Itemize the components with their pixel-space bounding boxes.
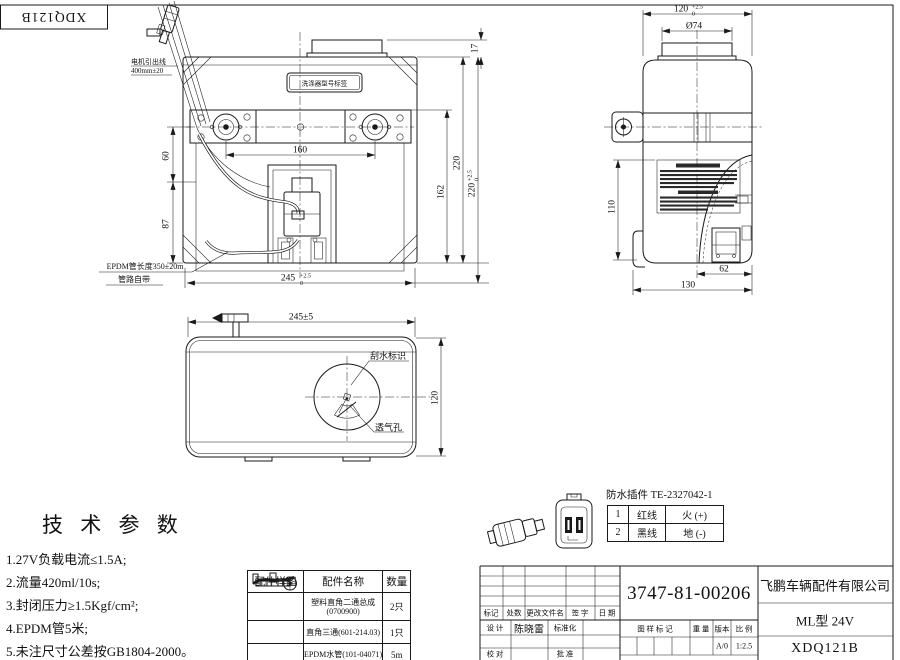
part-qty: 5m [383,644,411,660]
pump-channel [268,165,336,263]
model-label-plate: 洗涤器型号标签 [287,73,362,92]
epdm-hoses [199,134,304,253]
designer-name: 陈晓雷 [514,621,544,636]
rev-header-date: 日 期 [599,608,616,619]
front-view-dimensions: 60 87 160 162 220 220 +2.5 0 17 245 +2.5 [162,28,490,288]
dim-160: 160 [293,146,308,156]
drawing-linework: 洗涤器型号标签 [0,0,900,660]
dim-87: 87 [162,219,172,229]
warning-label [657,160,740,213]
rev-header-signature: 签 字 [572,608,589,619]
parts-header-name: 配件名称 [304,571,383,593]
dim-220-tol: 220 +2.5 0 [468,170,481,197]
side-view-dimensions: 120 +2.5 0 Ø74 110 62 130 [608,5,753,296]
part-name: 塑料直角二通总成 [304,598,382,607]
tech-param-item: 5.未注尺寸公差按GB1804-2000。 [6,641,194,660]
svg-text:+2.5: +2.5 [468,170,474,181]
tech-param-item: 3.封闭压力≥1.5Kgf/cm²; [6,595,138,614]
svg-text:+2.5: +2.5 [692,5,703,11]
tech-param-item: 2.流量420ml/10s; [6,572,100,591]
dim-245: 245 [281,274,296,284]
parts-table: 配件样图 配件名称 数量 塑料直角二通总成 (0700900) 2只 直角三通(… [247,570,411,660]
parts-row: 塑料直角二通总成 (0700900) 2只 [248,593,411,621]
connector-title: 防水插件 TE-2327042-1 [606,487,712,502]
product-model: ML型 24V [796,611,854,630]
pin-function: 地 (-) [666,524,724,542]
rev-header-docname: 更改文件名 [526,608,564,619]
part-name: EPDM水管(101-04071) [304,644,383,660]
part-number: 3747-81-00206 [627,583,751,605]
pin-wire: 黑线 [629,524,666,542]
wire-note-line2: 400mm±20 [131,67,164,75]
hose-note-line2: 管路自带 [118,274,150,284]
dim-110: 110 [608,200,618,214]
dim-17: 17 [471,44,481,54]
stamp-label: 图 样 标 记 [637,624,673,635]
weight-label: 重 量 [693,624,710,635]
wire-note-line1: 电机引出线 [131,57,166,66]
pin-wire: 红线 [629,506,666,524]
tank-side-outline [612,43,752,267]
dim-162: 162 [437,185,447,200]
pump-mount-plates [190,110,411,143]
dim-cap-diameter: Ø74 [686,22,703,32]
svg-text:0: 0 [300,281,303,287]
svg-text:0: 0 [475,178,481,181]
sheet-border [0,5,893,660]
part-qty: 2只 [383,593,411,621]
vent-hole [346,397,349,400]
scale-value: 1:2.5 [736,642,752,651]
pin-number: 1 [608,506,629,524]
motor-wire-note: 电机引出线 400mm±20 [131,57,178,75]
tech-param-item: 4.EPDM管5米; [6,618,88,637]
model-label-text: 洗涤器型号标签 [302,79,348,88]
check-label: 校 对 [487,649,504,660]
standardization-label: 标准化 [554,623,577,634]
dim-220: 220 [453,156,463,171]
outlet-nozzle [212,313,248,337]
parts-header-qty: 数量 [383,571,411,593]
top-view: 刮水标识 透气孔 245±5 120 [186,313,446,462]
approve-label: 批 准 [557,649,574,660]
design-label: 设 计 [487,623,504,634]
connector-3d-view [486,514,546,549]
pin-row: 1 红线 火 (+) [608,506,724,524]
svg-text:0: 0 [692,12,695,18]
rev-header-count: 处数 [507,608,522,619]
hose-length-note: EPDM管长度350±20m 管路自带 [99,252,228,285]
version-label: 版本 [715,624,730,635]
part-code: (0700900) [304,607,382,616]
pin-function: 火 (+) [666,506,724,524]
version-value: A/0 [716,642,728,651]
part-qty: 1只 [383,621,411,644]
connector-front-view [556,494,592,548]
engineering-drawing-sheet: 洗涤器型号标签 [0,0,900,660]
tech-params-title: 技 术 参 数 [42,509,184,539]
tech-param-item: 1.27V负载电流≤1.5A; [6,549,127,568]
epdm-hose-icon [248,571,301,587]
filler-cap-front [307,40,387,57]
dim-60: 60 [162,151,172,161]
dim-120-side: 120 [674,5,689,15]
side-view: 120 +2.5 0 Ø74 110 62 130 [604,5,762,296]
drawing-number: XDQ121B [791,641,859,657]
pin-row: 2 黑线 地 (-) [608,524,724,542]
corner-drawing-code: XDQ121B [0,5,107,29]
parts-row: 直角三通(601-214.03) 1只 [248,621,411,644]
dim-120-top: 120 [431,391,441,406]
rev-header-mark: 标记 [484,608,499,619]
svg-text:+2.5: +2.5 [300,274,311,280]
dim-62: 62 [719,265,729,275]
scale-label: 比 例 [736,624,753,635]
svg-text:220: 220 [468,183,478,198]
pin-table: 1 红线 火 (+) 2 黑线 地 (-) [607,505,724,542]
parts-row: EPDM水管(101-04071) 5m [248,644,411,660]
hose-note-line1: EPDM管长度350±20m [107,261,185,271]
wiper-mark-label: 刮水标识 [370,350,406,361]
front-view: 洗涤器型号标签 [99,1,489,288]
part-name: 直角三通(601-214.03) [304,621,383,644]
company-name: 飞鹏车辆配件有限公司 [760,576,890,595]
dim-245-top: 245±5 [289,313,313,323]
dim-130: 130 [681,281,696,291]
vent-hole-label: 透气孔 [375,422,402,433]
pin-number: 2 [608,524,629,542]
